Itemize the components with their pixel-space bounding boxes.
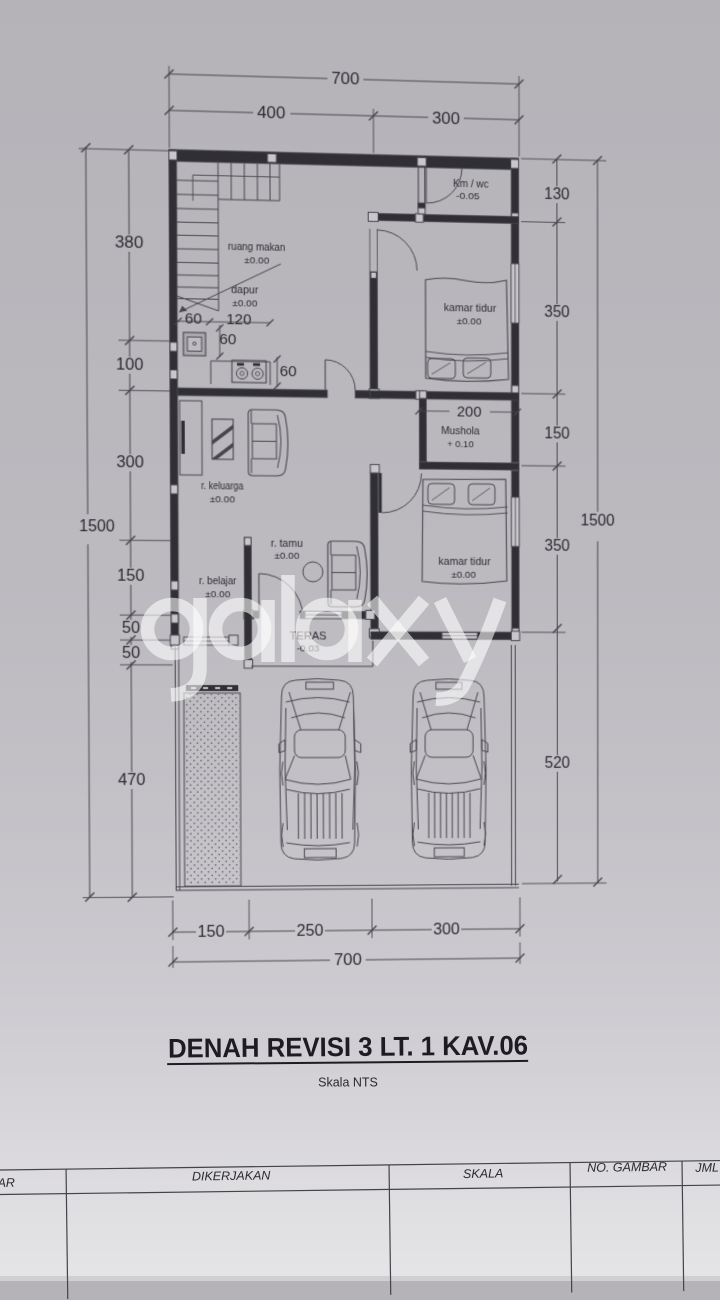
svg-text:DIKERJAKAN: DIKERJAKAN — [192, 1168, 272, 1183]
svg-text:Skala NTS: Skala NTS — [318, 1076, 378, 1090]
svg-text:SKALA: SKALA — [463, 1166, 503, 1181]
svg-text:DENAH REVISI 3 LT. 1 KAV.06: DENAH REVISI 3 LT. 1 KAV.06 — [168, 1030, 528, 1063]
svg-text:NO. GAMBAR: NO. GAMBAR — [587, 1160, 667, 1175]
svg-text:JML: JML — [694, 1161, 719, 1175]
svg-text:AR: AR — [0, 1176, 15, 1190]
